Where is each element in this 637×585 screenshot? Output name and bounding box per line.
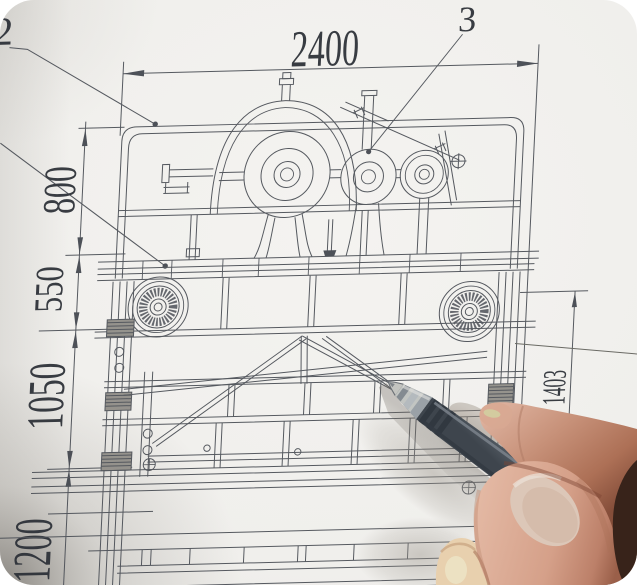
svg-text:3: 3	[457, 0, 477, 39]
svg-text:800: 800	[33, 166, 86, 215]
svg-text:2400: 2400	[290, 20, 361, 79]
svg-text:1403: 1403	[536, 370, 574, 406]
svg-text:550: 550	[25, 266, 72, 313]
svg-text:2: 2	[0, 9, 14, 54]
svg-text:1200: 1200	[1, 518, 64, 583]
svg-text:1050: 1050	[17, 362, 77, 430]
